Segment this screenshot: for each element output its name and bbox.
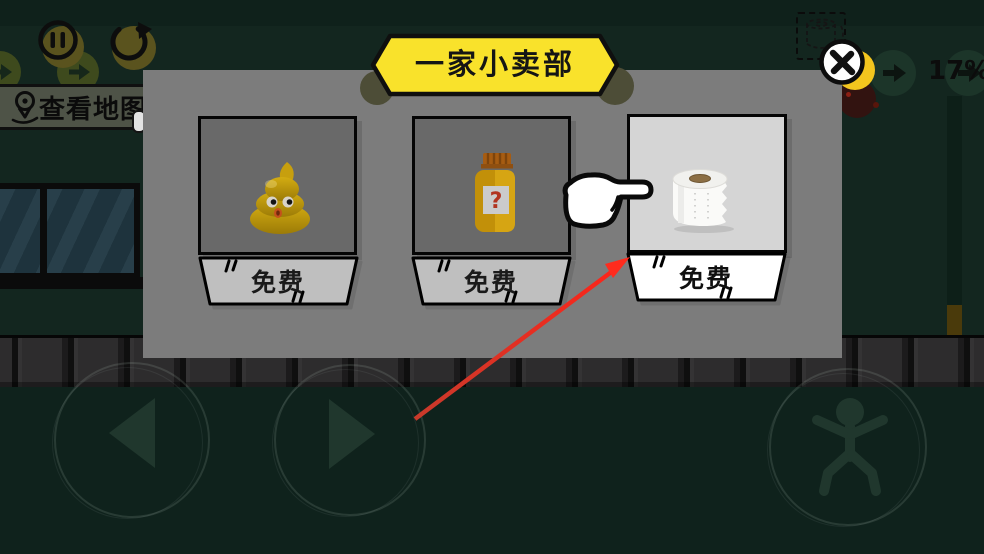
restart-button[interactable]: [108, 20, 154, 64]
price-tag[interactable]: 免费: [625, 251, 788, 303]
jump-button[interactable]: [769, 368, 927, 526]
poop-item-icon: [245, 157, 315, 237]
location-pin-icon: [6, 87, 39, 127]
jump-figure-icon: [771, 370, 929, 528]
item-art-frame: ?: [412, 116, 571, 255]
move-right-button[interactable]: [274, 364, 426, 516]
pause-button[interactable]: [37, 19, 79, 61]
bomb-spark: [873, 102, 879, 108]
close-x-icon: [812, 36, 880, 98]
left-arrow-icon: [109, 398, 155, 468]
price-label: 免费: [679, 264, 733, 293]
item-art-frame: [198, 116, 357, 255]
price-tag[interactable]: 免费: [410, 255, 573, 307]
mystery-jar-item-icon: ?: [469, 151, 521, 237]
restart-icon: [108, 20, 154, 64]
view-map-button[interactable]: 查看地图: [0, 84, 150, 130]
close-button[interactable]: [812, 36, 880, 98]
window: [0, 183, 140, 279]
svg-text:?: ?: [490, 189, 503, 214]
view-map-label: 查看地图: [39, 89, 147, 126]
window-pane: [0, 189, 40, 273]
price-tag[interactable]: 免费: [197, 255, 360, 307]
pause-icon: [37, 19, 79, 61]
price-label: 免费: [251, 268, 305, 297]
move-left-button[interactable]: [54, 362, 210, 518]
price-label: 免费: [464, 268, 518, 297]
progress-label: 17%: [928, 56, 982, 86]
right-arrow-icon: [329, 399, 375, 469]
window-pane: [47, 189, 134, 273]
shop-title: 一家小卖部: [370, 44, 620, 84]
window-sill: [0, 277, 148, 289]
game-screen: 查看地图: [0, 0, 984, 554]
pointing-hand-icon: [558, 167, 656, 233]
toilet-paper-item-icon: [670, 165, 744, 237]
